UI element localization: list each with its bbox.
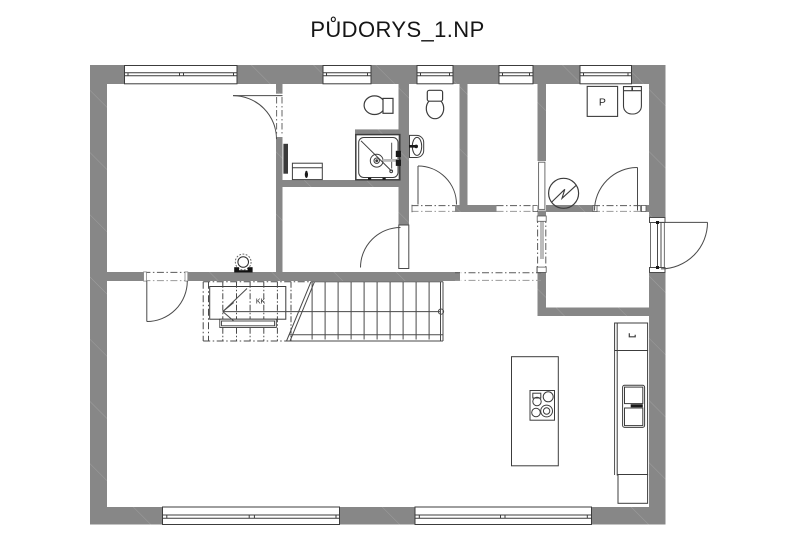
svg-text:PŮDORYS_1.NP: PŮDORYS_1.NP: [310, 17, 484, 42]
svg-text:P: P: [599, 97, 606, 109]
